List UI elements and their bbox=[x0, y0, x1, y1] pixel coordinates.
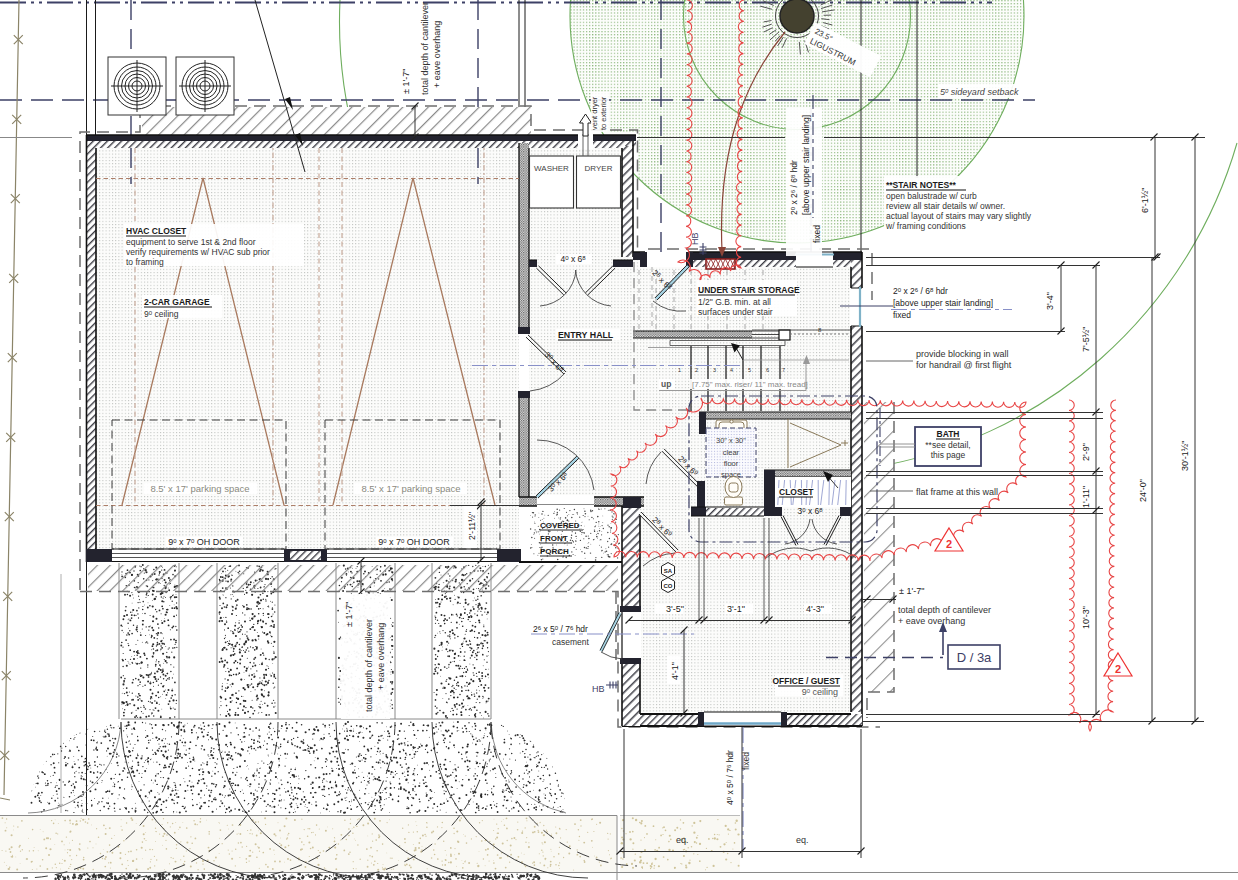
svg-text:eq.: eq. bbox=[796, 835, 809, 845]
svg-text:fixed: fixed bbox=[812, 225, 822, 243]
svg-text:2: 2 bbox=[1115, 663, 1121, 675]
svg-text:6'-1½": 6'-1½" bbox=[1140, 188, 1150, 213]
svg-text:HB: HB bbox=[690, 232, 700, 245]
svg-text:6: 6 bbox=[766, 367, 769, 373]
svg-text:+ eave overhang: + eave overhang bbox=[376, 623, 386, 690]
svg-text:± 1'-7": ± 1'-7" bbox=[401, 69, 411, 94]
svg-text:vent dryer: vent dryer bbox=[590, 96, 599, 130]
svg-text:4'-1": 4'-1" bbox=[670, 662, 680, 680]
svg-text:2-CAR GARAGE: 2-CAR GARAGE bbox=[144, 297, 210, 307]
svg-text:COVERED: COVERED bbox=[540, 521, 580, 530]
svg-text:8.5' x 17' parking space: 8.5' x 17' parking space bbox=[361, 483, 460, 494]
svg-text:OFFICE / GUEST: OFFICE / GUEST bbox=[772, 676, 840, 686]
svg-text:total depth of cantilever: total depth of cantilever bbox=[898, 605, 991, 615]
svg-text:10'-3": 10'-3" bbox=[1081, 606, 1091, 629]
svg-text:90 x 70 OH DOOR: 90 x 70 OH DOOR bbox=[168, 537, 240, 547]
svg-text:[above upper stair landing]: [above upper stair landing] bbox=[801, 115, 811, 215]
svg-text:fixed: fixed bbox=[741, 752, 751, 770]
svg-text:SA: SA bbox=[664, 568, 673, 574]
svg-text:± 1'-7": ± 1'-7" bbox=[344, 602, 354, 627]
svg-text:surfaces under stair: surfaces under stair bbox=[698, 307, 773, 317]
svg-text:**see detail,: **see detail, bbox=[925, 440, 970, 450]
svg-text:2: 2 bbox=[946, 538, 952, 550]
svg-text:90 x 70 OH DOOR: 90 x 70 OH DOOR bbox=[378, 537, 450, 547]
svg-text:1: 1 bbox=[678, 367, 681, 373]
svg-text:50 sideyard setback: 50 sideyard setback bbox=[940, 87, 1019, 97]
svg-text:up: up bbox=[661, 379, 671, 389]
svg-text:equipment to serve 1st & 2nd: equipment to serve 1st & 2nd floor bbox=[126, 237, 256, 247]
svg-text:20 x 26 / 68 hdr: 20 x 26 / 68 hdr bbox=[893, 286, 948, 296]
svg-text:[7.75" max. riser/ 11" max. tr: [7.75" max. riser/ 11" max. tread] bbox=[692, 380, 808, 389]
svg-text:UNDER STAIR STORAGE: UNDER STAIR STORAGE bbox=[698, 285, 800, 295]
svg-text:FRONT: FRONT bbox=[540, 534, 568, 543]
svg-text:PORCH: PORCH bbox=[540, 547, 569, 556]
svg-text:30'-1½": 30'-1½" bbox=[1180, 441, 1190, 471]
svg-text:+ eave overhang: + eave overhang bbox=[898, 616, 965, 626]
svg-text:7: 7 bbox=[782, 367, 785, 373]
svg-text:20 x 26 / 68 hdr: 20 x 26 / 68 hdr bbox=[789, 160, 799, 215]
svg-text:verify requirements w/ HVAC su: verify requirements w/ HVAC sub prior bbox=[126, 247, 270, 257]
svg-text:30" x 30": 30" x 30" bbox=[716, 436, 746, 445]
svg-text:3'-5": 3'-5" bbox=[666, 604, 684, 614]
svg-text:open balustrade w/ curb: open balustrade w/ curb bbox=[886, 191, 977, 201]
svg-text:8.5' x 17' parking space: 8.5' x 17' parking space bbox=[150, 483, 249, 494]
svg-text:for handrail @ first flight: for handrail @ first flight bbox=[916, 360, 1012, 370]
svg-text:D / 3a: D / 3a bbox=[957, 650, 992, 665]
svg-text:CO: CO bbox=[664, 583, 673, 589]
svg-text:4: 4 bbox=[730, 367, 733, 373]
svg-text:flat frame at this wall: flat frame at this wall bbox=[916, 487, 998, 497]
svg-text:w/ framing conditions: w/ framing conditions bbox=[885, 221, 966, 231]
svg-text:3'-4": 3'-4" bbox=[1045, 292, 1055, 310]
svg-text:to framing: to framing bbox=[126, 257, 164, 267]
svg-text:2: 2 bbox=[695, 367, 698, 373]
svg-text:24'-0": 24'-0" bbox=[1138, 479, 1148, 502]
svg-text:5: 5 bbox=[748, 367, 751, 373]
svg-text:clear: clear bbox=[723, 448, 740, 457]
svg-text:fixed: fixed bbox=[893, 310, 911, 320]
svg-text:40 x 50 / 76 hdr: 40 x 50 / 76 hdr bbox=[725, 750, 735, 805]
svg-text:eq.: eq. bbox=[676, 835, 689, 845]
svg-text:provide blocking in wall: provide blocking in wall bbox=[916, 349, 1009, 359]
svg-text:7'-5½": 7'-5½" bbox=[1081, 327, 1091, 352]
svg-text:HVAC CLOSET: HVAC CLOSET bbox=[126, 226, 187, 236]
svg-text:floor: floor bbox=[724, 459, 739, 468]
svg-text:ENTRY HALL: ENTRY HALL bbox=[558, 330, 614, 340]
svg-text:actual layout of stairs may va: actual layout of stairs may vary slightl… bbox=[886, 211, 1032, 221]
svg-text:± 1'-7": ± 1'-7" bbox=[899, 586, 924, 596]
svg-text:BATH: BATH bbox=[937, 429, 960, 439]
svg-text:4'-3": 4'-3" bbox=[806, 604, 824, 614]
svg-text:3'-1": 3'-1" bbox=[727, 604, 745, 614]
svg-text:CLOSET: CLOSET bbox=[779, 487, 814, 497]
svg-text:this page: this page bbox=[931, 450, 966, 460]
svg-text:to exterior: to exterior bbox=[599, 96, 608, 130]
svg-text:[above upper stair landing]: [above upper stair landing] bbox=[893, 298, 993, 308]
svg-text:1/2" G.B. min. at all: 1/2" G.B. min. at all bbox=[698, 297, 771, 307]
svg-text:total depth of cantilever: total depth of cantilever bbox=[420, 2, 430, 95]
svg-text:+ eave overhang: + eave overhang bbox=[432, 21, 442, 88]
svg-text:3: 3 bbox=[713, 367, 716, 373]
svg-text:26 x 50 / 76 hdr: 26 x 50 / 76 hdr bbox=[533, 624, 588, 634]
svg-text:**STAIR NOTES**: **STAIR NOTES** bbox=[886, 180, 956, 190]
svg-text:2'-11½": 2'-11½" bbox=[467, 512, 477, 540]
svg-text:WASHER: WASHER bbox=[534, 164, 569, 173]
svg-text:total depth of cantilever: total depth of cantilever bbox=[364, 619, 374, 712]
svg-text:casement: casement bbox=[552, 637, 589, 647]
svg-text:2'-9": 2'-9" bbox=[1081, 443, 1091, 461]
svg-text:review all stair details w/ ow: review all stair details w/ owner. bbox=[886, 201, 1005, 211]
svg-text:1'-11": 1'-11" bbox=[1081, 486, 1091, 508]
svg-text:DRYER: DRYER bbox=[585, 164, 613, 173]
svg-text:HB: HB bbox=[592, 684, 605, 694]
